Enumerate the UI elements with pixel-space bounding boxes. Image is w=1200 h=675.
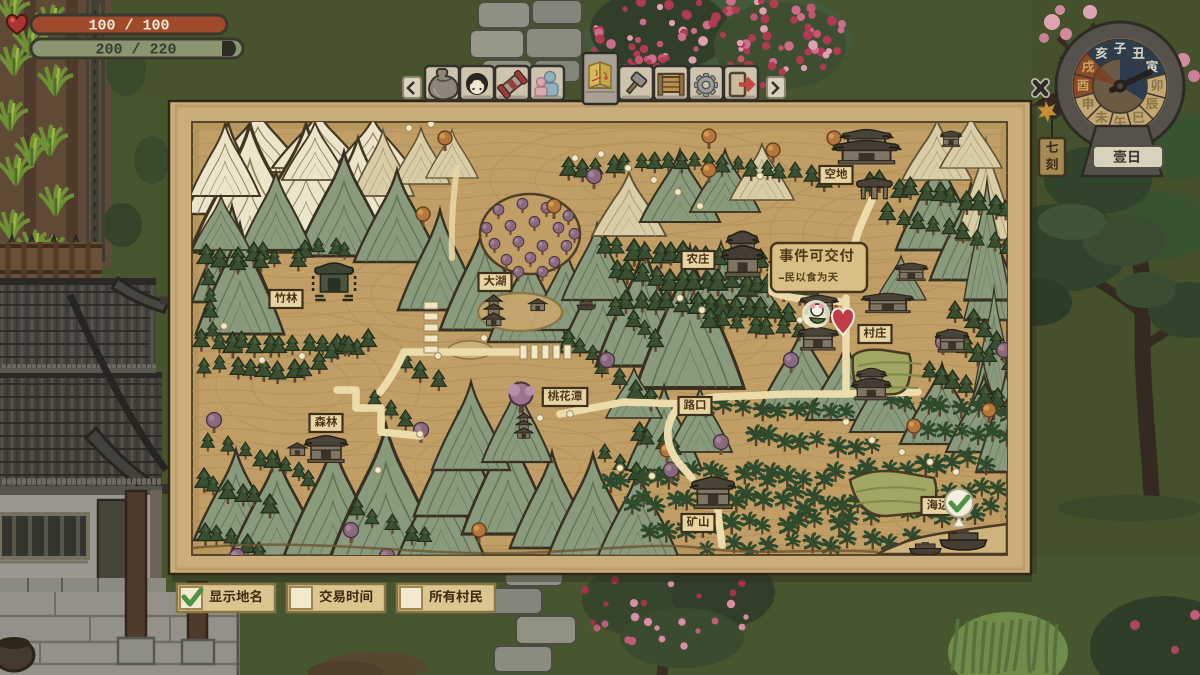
svg-text:200 / 220: 200 / 220 [95, 42, 176, 59]
svg-text:100 / 100: 100 / 100 [88, 18, 169, 35]
